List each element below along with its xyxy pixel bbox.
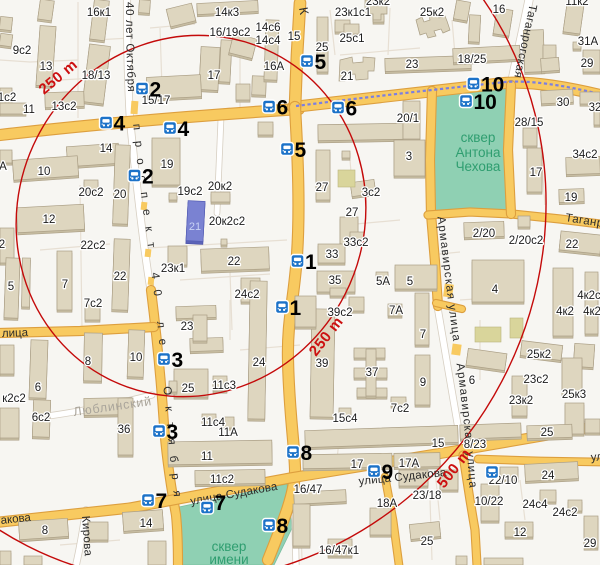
- svg-text:16А: 16А: [264, 61, 285, 73]
- svg-text:19с2: 19с2: [178, 186, 203, 198]
- svg-text:Антона: Антона: [456, 145, 501, 160]
- svg-text:13с2: 13с2: [52, 101, 77, 113]
- svg-text:17: 17: [530, 167, 543, 179]
- svg-text:23/18: 23/18: [413, 490, 442, 502]
- svg-text:18/13: 18/13: [82, 70, 111, 82]
- svg-text:15: 15: [288, 31, 301, 43]
- svg-text:7с2: 7с2: [84, 298, 103, 310]
- svg-text:24с2: 24с2: [553, 507, 578, 519]
- svg-text:25: 25: [182, 383, 195, 395]
- svg-text:19: 19: [161, 159, 174, 171]
- svg-text:5А: 5А: [376, 276, 390, 288]
- svg-text:11: 11: [23, 104, 35, 116]
- svg-text:9: 9: [382, 461, 394, 484]
- svg-text:18/25: 18/25: [458, 54, 487, 66]
- svg-text:6: 6: [277, 97, 289, 120]
- svg-text:39: 39: [316, 358, 329, 370]
- svg-text:4: 4: [178, 118, 190, 141]
- svg-text:23к2: 23к2: [366, 0, 390, 8]
- svg-text:6: 6: [35, 382, 41, 394]
- svg-text:10: 10: [130, 352, 143, 364]
- svg-text:3: 3: [406, 151, 412, 163]
- svg-text:6: 6: [469, 375, 475, 387]
- svg-text:29: 29: [584, 538, 597, 550]
- svg-text:25к2: 25к2: [527, 349, 551, 361]
- svg-text:7А: 7А: [389, 305, 403, 317]
- svg-text:20: 20: [114, 189, 127, 201]
- svg-text:17А: 17А: [399, 458, 420, 470]
- svg-text:сквер: сквер: [461, 130, 496, 145]
- svg-text:4: 4: [114, 113, 126, 136]
- svg-text:16: 16: [493, 4, 506, 16]
- svg-text:25: 25: [541, 427, 554, 439]
- svg-text:17: 17: [208, 70, 221, 82]
- svg-text:7: 7: [156, 490, 168, 513]
- svg-text:4к2: 4к2: [556, 306, 574, 318]
- svg-text:7: 7: [215, 492, 227, 515]
- svg-text:20к2с2: 20к2с2: [209, 216, 245, 228]
- svg-text:23к1: 23к1: [161, 263, 185, 275]
- svg-text:7: 7: [420, 329, 426, 341]
- svg-text:6с2: 6с2: [32, 412, 51, 424]
- svg-text:20/1: 20/1: [397, 113, 419, 125]
- svg-text:40 лет Октября: 40 лет Октября: [123, 2, 137, 92]
- svg-text:16/47: 16/47: [294, 484, 323, 496]
- svg-text:30: 30: [557, 97, 570, 109]
- svg-text:10: 10: [38, 166, 51, 178]
- svg-text:10/22: 10/22: [475, 496, 504, 508]
- svg-text:24: 24: [542, 470, 555, 482]
- svg-text:9с2: 9с2: [13, 45, 32, 57]
- svg-text:20к2: 20к2: [208, 181, 232, 193]
- svg-text:27: 27: [346, 207, 359, 219]
- svg-text:27: 27: [316, 182, 329, 194]
- svg-text:8: 8: [85, 356, 91, 368]
- svg-text:5: 5: [8, 281, 14, 293]
- svg-text:17: 17: [351, 459, 364, 471]
- svg-text:14: 14: [100, 143, 113, 155]
- svg-text:А: А: [0, 161, 7, 173]
- svg-text:9: 9: [420, 377, 426, 389]
- svg-text:16/47к1: 16/47к1: [319, 545, 359, 557]
- svg-text:31А: 31А: [578, 36, 599, 48]
- svg-text:24с2: 24с2: [235, 289, 260, 301]
- svg-text:7: 7: [62, 279, 68, 291]
- svg-text:25к2: 25к2: [420, 7, 444, 19]
- svg-text:14с6: 14с6: [256, 22, 281, 34]
- svg-text:29: 29: [581, 58, 594, 70]
- svg-text:19: 19: [565, 192, 578, 204]
- svg-text:1с2: 1с2: [0, 92, 16, 104]
- svg-text:12: 12: [514, 527, 527, 539]
- svg-text:23: 23: [181, 321, 194, 333]
- svg-text:22: 22: [566, 239, 579, 251]
- svg-text:33с2: 33с2: [344, 237, 369, 249]
- svg-text:21: 21: [189, 221, 201, 233]
- svg-text:11А: 11А: [218, 427, 238, 439]
- svg-text:18А: 18А: [377, 498, 398, 510]
- svg-text:4: 4: [492, 284, 499, 296]
- svg-text:4к2: 4к2: [583, 306, 600, 318]
- svg-text:7с2: 7с2: [391, 403, 410, 415]
- svg-text:37: 37: [366, 367, 379, 379]
- svg-text:25к3: 25к3: [562, 389, 586, 401]
- svg-text:лица: лица: [2, 327, 29, 340]
- svg-text:5: 5: [315, 51, 327, 74]
- svg-text:35: 35: [329, 275, 342, 287]
- svg-text:3: 3: [172, 349, 184, 372]
- svg-text:2: 2: [150, 79, 162, 102]
- svg-text:16к1: 16к1: [87, 7, 111, 19]
- svg-text:23с2: 23с2: [524, 374, 549, 386]
- svg-text:4к2с: 4к2с: [577, 290, 600, 302]
- svg-text:22: 22: [114, 271, 127, 283]
- svg-text:1: 1: [290, 297, 302, 320]
- svg-text:11с3: 11с3: [212, 380, 236, 392]
- svg-text:11к2: 11к2: [565, 0, 588, 8]
- svg-text:20с2: 20с2: [79, 187, 104, 199]
- svg-text:2/20с2: 2/20с2: [509, 235, 544, 247]
- svg-text:23к2: 23к2: [509, 395, 533, 407]
- svg-text:11с2: 11с2: [210, 474, 234, 486]
- svg-text:23к1с1: 23к1с1: [335, 7, 371, 19]
- svg-text:15с4: 15с4: [333, 413, 359, 425]
- svg-text:28/15: 28/15: [515, 117, 544, 129]
- svg-text:34с2: 34с2: [573, 149, 598, 161]
- svg-text:2: 2: [142, 166, 154, 189]
- svg-text:25: 25: [421, 536, 434, 548]
- svg-text:24: 24: [253, 357, 266, 369]
- svg-text:12: 12: [43, 214, 56, 226]
- svg-text:36: 36: [118, 424, 131, 436]
- svg-text:имени: имени: [209, 552, 248, 565]
- svg-text:13: 13: [40, 61, 53, 73]
- svg-text:Чехова: Чехова: [456, 159, 501, 174]
- svg-text:25с1: 25с1: [340, 33, 365, 45]
- svg-text:21: 21: [341, 71, 354, 83]
- svg-text:5: 5: [295, 139, 307, 162]
- svg-text:8: 8: [277, 515, 289, 538]
- svg-text:6: 6: [346, 98, 358, 121]
- svg-text:8: 8: [42, 525, 48, 537]
- svg-text:14к3: 14к3: [215, 7, 239, 19]
- svg-text:3с2: 3с2: [362, 187, 381, 199]
- svg-text:15: 15: [432, 438, 445, 450]
- svg-text:3: 3: [167, 421, 179, 444]
- svg-text:33: 33: [326, 249, 339, 261]
- svg-text:ул: ул: [590, 451, 600, 464]
- svg-text:22: 22: [228, 256, 241, 268]
- svg-text:8/23: 8/23: [464, 439, 486, 451]
- svg-text:22с2: 22с2: [81, 240, 106, 252]
- svg-text:39с2: 39с2: [328, 307, 353, 319]
- svg-text:1: 1: [305, 251, 317, 274]
- svg-text:5: 5: [407, 276, 413, 288]
- svg-text:16/19с2: 16/19с2: [210, 27, 251, 39]
- svg-text:к2с2: к2с2: [2, 393, 26, 405]
- svg-text:2/20: 2/20: [473, 228, 495, 240]
- svg-text:8: 8: [301, 442, 313, 465]
- svg-text:11: 11: [201, 451, 213, 463]
- svg-text:32: 32: [589, 102, 600, 114]
- svg-text:14с4: 14с4: [256, 35, 282, 47]
- svg-text:24с4: 24с4: [523, 499, 549, 511]
- svg-text:10: 10: [474, 91, 497, 114]
- svg-text:2: 2: [0, 239, 5, 251]
- svg-text:23: 23: [406, 59, 419, 71]
- svg-text:14: 14: [140, 518, 153, 530]
